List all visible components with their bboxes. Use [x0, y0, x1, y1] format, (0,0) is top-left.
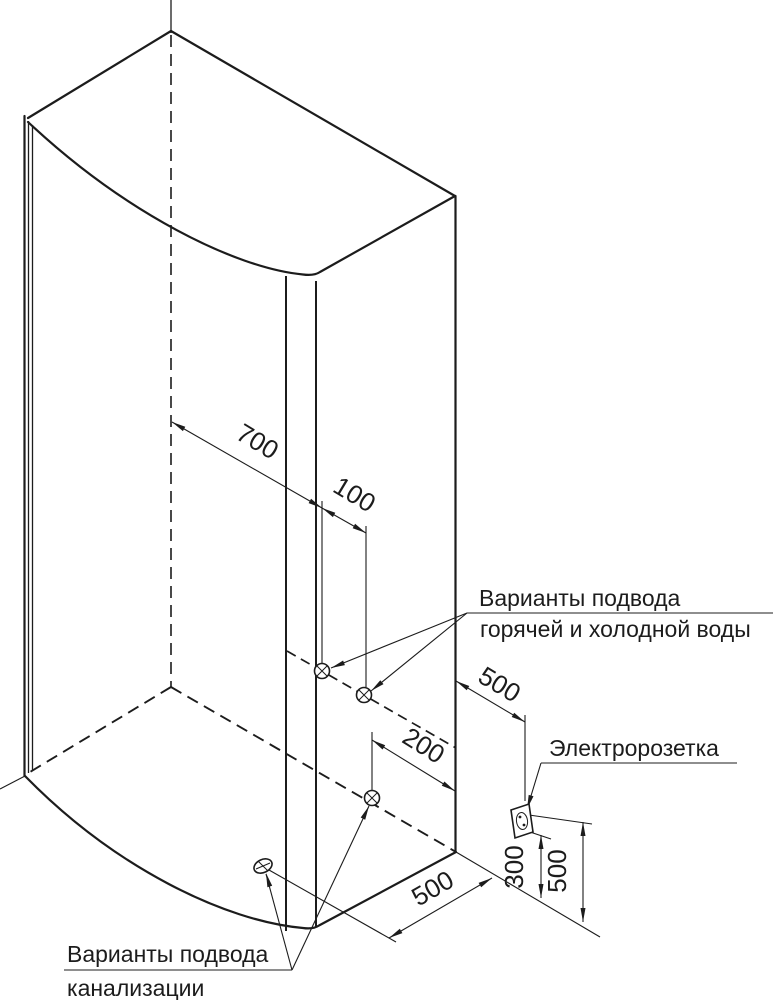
arrowhead — [456, 681, 469, 690]
shower-installation-diagram: 700 100 500 200 500 300 500 Варианты под… — [0, 0, 775, 1000]
arrowhead — [372, 740, 385, 750]
ext-floor-drain — [269, 870, 396, 942]
arrowhead — [512, 713, 525, 722]
electrical-socket-symbol — [511, 804, 533, 838]
arrowhead — [331, 661, 345, 669]
water-supply-label-line1: Варианты подвода — [479, 585, 681, 611]
arrowhead — [172, 422, 185, 431]
water-leader-2 — [371, 613, 467, 691]
dim-text-100: 100 — [328, 470, 381, 518]
hidden-floor-left-edge — [25, 687, 171, 775]
water-connection-point-1 — [315, 664, 330, 679]
arrowhead — [371, 680, 384, 691]
socket-label: Электророзетка — [549, 735, 719, 761]
sewage-connection-floor — [252, 856, 275, 876]
arrowhead — [266, 873, 272, 887]
sewage-leader-2 — [292, 806, 369, 970]
water-connection-point-2 — [357, 688, 372, 703]
cabin-outline — [0, 0, 456, 931]
arrowhead — [353, 524, 366, 533]
sewage-label-line2: канализации — [67, 975, 204, 1000]
socket-hole-icon — [519, 816, 522, 819]
arrowhead — [539, 835, 544, 849]
bottom-front-curved-edge — [25, 776, 456, 928]
sewage-label-line1: Варианты подвода — [67, 941, 269, 967]
arrowhead — [361, 806, 369, 820]
arrowhead — [389, 929, 402, 938]
socket-outline-icon — [511, 804, 533, 838]
arrowhead — [442, 782, 455, 792]
dim-text-500-floor: 500 — [406, 864, 459, 912]
hidden-floor-right-edge — [171, 687, 456, 852]
dim-text-500-wall: 500 — [473, 660, 526, 708]
water-leader-1 — [331, 613, 467, 668]
arrowhead — [479, 878, 492, 887]
top-back-right-edge — [171, 31, 455, 196]
sewage-connection-wall — [365, 791, 380, 806]
arrowhead — [581, 908, 586, 922]
top-front-curved-edge — [28, 122, 455, 275]
water-supply-label-line2: горячей и холодной воды — [480, 616, 751, 642]
text-labels: Варианты подвода горячей и холодной воды… — [67, 585, 751, 1000]
dim-text-200: 200 — [397, 721, 450, 769]
dim-text-500-height: 500 — [542, 849, 572, 892]
top-back-left-edge — [28, 31, 171, 118]
dim-text-700: 700 — [231, 417, 284, 465]
dimension-texts: 700 100 500 200 500 300 500 — [231, 417, 572, 912]
arrowhead — [581, 822, 586, 836]
dim-text-300: 300 — [499, 845, 529, 888]
arrowhead — [322, 508, 335, 517]
diagram-canvas: 700 100 500 200 500 300 500 Варианты под… — [0, 0, 775, 1000]
socket-hole-icon — [523, 824, 526, 827]
floor-line-extension-left — [0, 776, 25, 789]
